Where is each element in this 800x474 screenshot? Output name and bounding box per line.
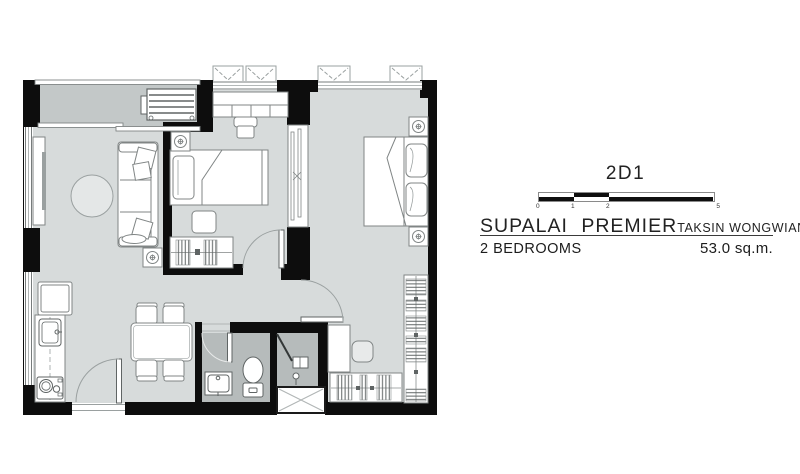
- kitchen-counter: [35, 315, 65, 402]
- downlight-icon: [409, 117, 428, 136]
- scale-tick-5: 5: [710, 203, 720, 210]
- divider-line: [480, 235, 773, 236]
- kitchen-sink-icon: [39, 319, 62, 346]
- scale-tick-0: 0: [536, 203, 546, 210]
- stove-icon: [37, 377, 63, 399]
- scale-bar-segment: [574, 193, 609, 197]
- air-conditioner-icon: [141, 89, 196, 120]
- scale-bar-segment: [609, 197, 713, 201]
- toilet-icon: [243, 357, 263, 397]
- drawer-chest-icon: [170, 237, 233, 268]
- area-label: 53.0 sq.m.: [700, 240, 773, 257]
- scale-bar-segment: [539, 197, 574, 201]
- downlight-icon: [171, 132, 190, 151]
- downlight-icon: [409, 227, 428, 246]
- title-block: 2D1 0 1 2 5 SUPALAI PREMIER TAKSIN WONGW…: [480, 163, 773, 273]
- downlight-icon: [143, 248, 162, 267]
- floor-plan-page: 2D1 0 1 2 5 SUPALAI PREMIER TAKSIN WONGW…: [0, 0, 800, 474]
- cabinet-icon: [328, 325, 350, 372]
- double-bed-icon: [364, 137, 428, 226]
- project-location: TAKSIN WONGWIANYAI: [677, 221, 800, 235]
- vanity-sink-icon: [205, 372, 232, 396]
- condenser-ledge-icon: [277, 387, 325, 413]
- unit-type-label: 2D1: [538, 163, 713, 185]
- built-in-wardrobe-icon: [288, 125, 308, 227]
- round-rug-icon: [71, 175, 113, 217]
- scale-tick-2: 2: [606, 203, 616, 210]
- scale-tick-1: 1: [571, 203, 581, 210]
- wardrobe-icon: [213, 92, 288, 117]
- bedside-shelf-icon: [192, 211, 216, 233]
- sofa-icon: [118, 142, 158, 247]
- bedrooms-label: 2 BEDROOMS: [480, 241, 582, 257]
- single-bed-icon: [170, 150, 268, 205]
- tv-console-icon: [33, 137, 46, 225]
- desk-chair-icon: [234, 117, 257, 138]
- refrigerator-icon: [38, 282, 72, 315]
- spec-row: 2 BEDROOMS 53.0 sq.m.: [480, 240, 773, 257]
- sliding-door-icon: [38, 123, 123, 128]
- balcony-railing: [35, 80, 200, 85]
- scale-bar: [538, 192, 715, 202]
- pouf-icon: [352, 341, 373, 362]
